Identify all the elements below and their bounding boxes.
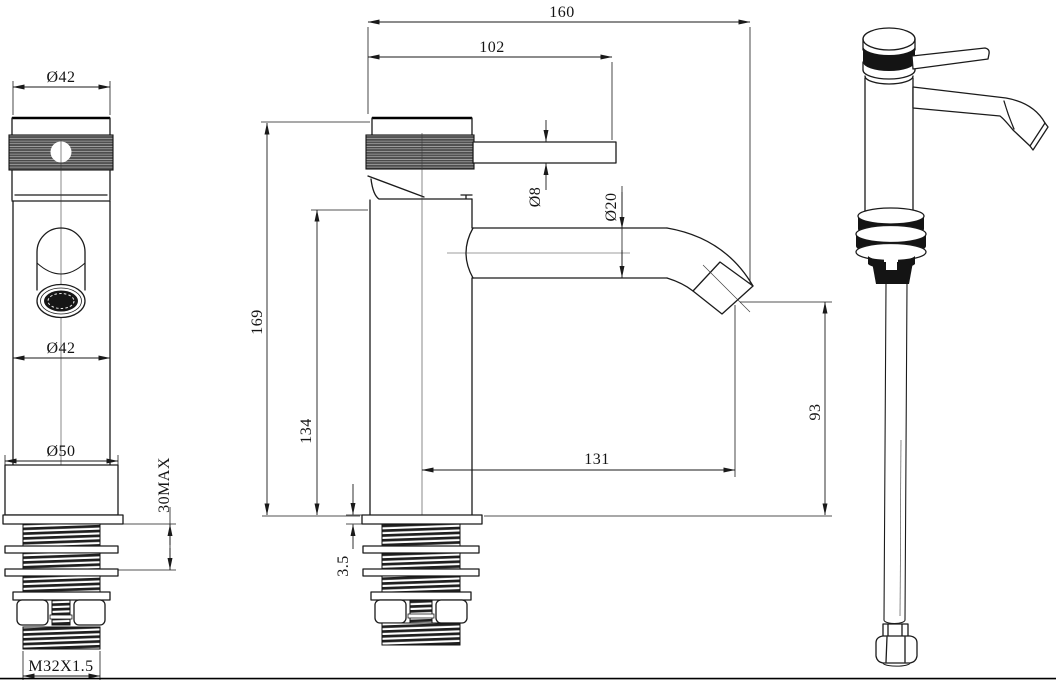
dim-cap-diameter: Ø42 xyxy=(13,69,110,115)
dim-cap-diameter-text: Ø42 xyxy=(46,69,75,86)
dim-body-diameter-text: Ø42 xyxy=(46,340,75,357)
lock-nut-wing-right xyxy=(74,600,105,625)
faucet-body-side xyxy=(370,133,472,516)
dim-body-diameter: Ø42 xyxy=(13,340,110,358)
hose-nut xyxy=(876,624,917,666)
perspective-view xyxy=(856,28,1048,666)
dim-base-diameter: Ø50 xyxy=(5,443,118,467)
dim-spout-reach-text: 131 xyxy=(584,451,610,468)
dim-spout-reach: 131 xyxy=(422,305,735,477)
threaded-shank-side xyxy=(363,524,479,645)
dim-handle-length-text: 102 xyxy=(479,39,505,56)
dim-max-deck-thickness: 30MAX xyxy=(118,457,176,570)
supply-tube xyxy=(884,284,907,624)
dim-spout-tube-diameter: Ø20 xyxy=(603,186,622,278)
dim-base-diameter-text: Ø50 xyxy=(46,443,75,460)
dim-handle-length: 102 xyxy=(368,39,612,140)
dim-base-plate-thickness: 3.5 xyxy=(335,484,362,577)
front-view: Ø42 Ø42 xyxy=(3,69,176,680)
lock-nut-plate xyxy=(13,592,110,600)
handle-cap-side xyxy=(372,118,472,135)
dim-shank-thread-text: M32X1.5 xyxy=(28,658,93,675)
knurled-ring-side xyxy=(366,135,474,169)
dim-max-deck-thickness-text: 30MAX xyxy=(156,457,173,513)
spout-3d xyxy=(913,87,1048,150)
dim-base-plate-thickness-text: 3.5 xyxy=(335,555,352,577)
neck-joint xyxy=(368,176,472,199)
dim-overall-height-text: 169 xyxy=(249,309,266,335)
dim-body-height: 134 xyxy=(298,210,368,515)
ring-stack-3d xyxy=(856,208,926,284)
deck-flange-side xyxy=(362,515,482,524)
dim-handle-rod-diameter-text: Ø8 xyxy=(527,187,544,208)
washer-1 xyxy=(5,546,118,553)
side-view: 160 102 Ø8 xyxy=(249,4,832,645)
cap-3d xyxy=(863,28,915,50)
drawing-canvas: Ø42 Ø42 xyxy=(0,0,1056,680)
lever-3d xyxy=(912,48,989,69)
dim-outlet-height: 93 xyxy=(740,302,832,515)
deck-flange xyxy=(3,515,123,524)
dim-outlet-height-text: 93 xyxy=(807,404,824,421)
base-block xyxy=(5,465,118,515)
dim-overall-height: 169 xyxy=(249,122,370,515)
technical-drawing-sheet: Ø42 Ø42 xyxy=(0,0,1056,680)
washer-2 xyxy=(5,569,118,576)
dim-spout-tube-diameter-text: Ø20 xyxy=(603,192,620,221)
dim-overall-length-text: 160 xyxy=(549,4,575,21)
dim-body-height-text: 134 xyxy=(298,418,315,444)
lever-rod xyxy=(473,142,616,163)
spout-side xyxy=(447,228,753,314)
lock-nut-wing-left xyxy=(17,600,48,625)
body-3d xyxy=(865,78,913,212)
dim-shank-thread: M32X1.5 xyxy=(23,651,100,680)
threaded-shank xyxy=(5,524,118,649)
handle-cap xyxy=(12,118,110,135)
